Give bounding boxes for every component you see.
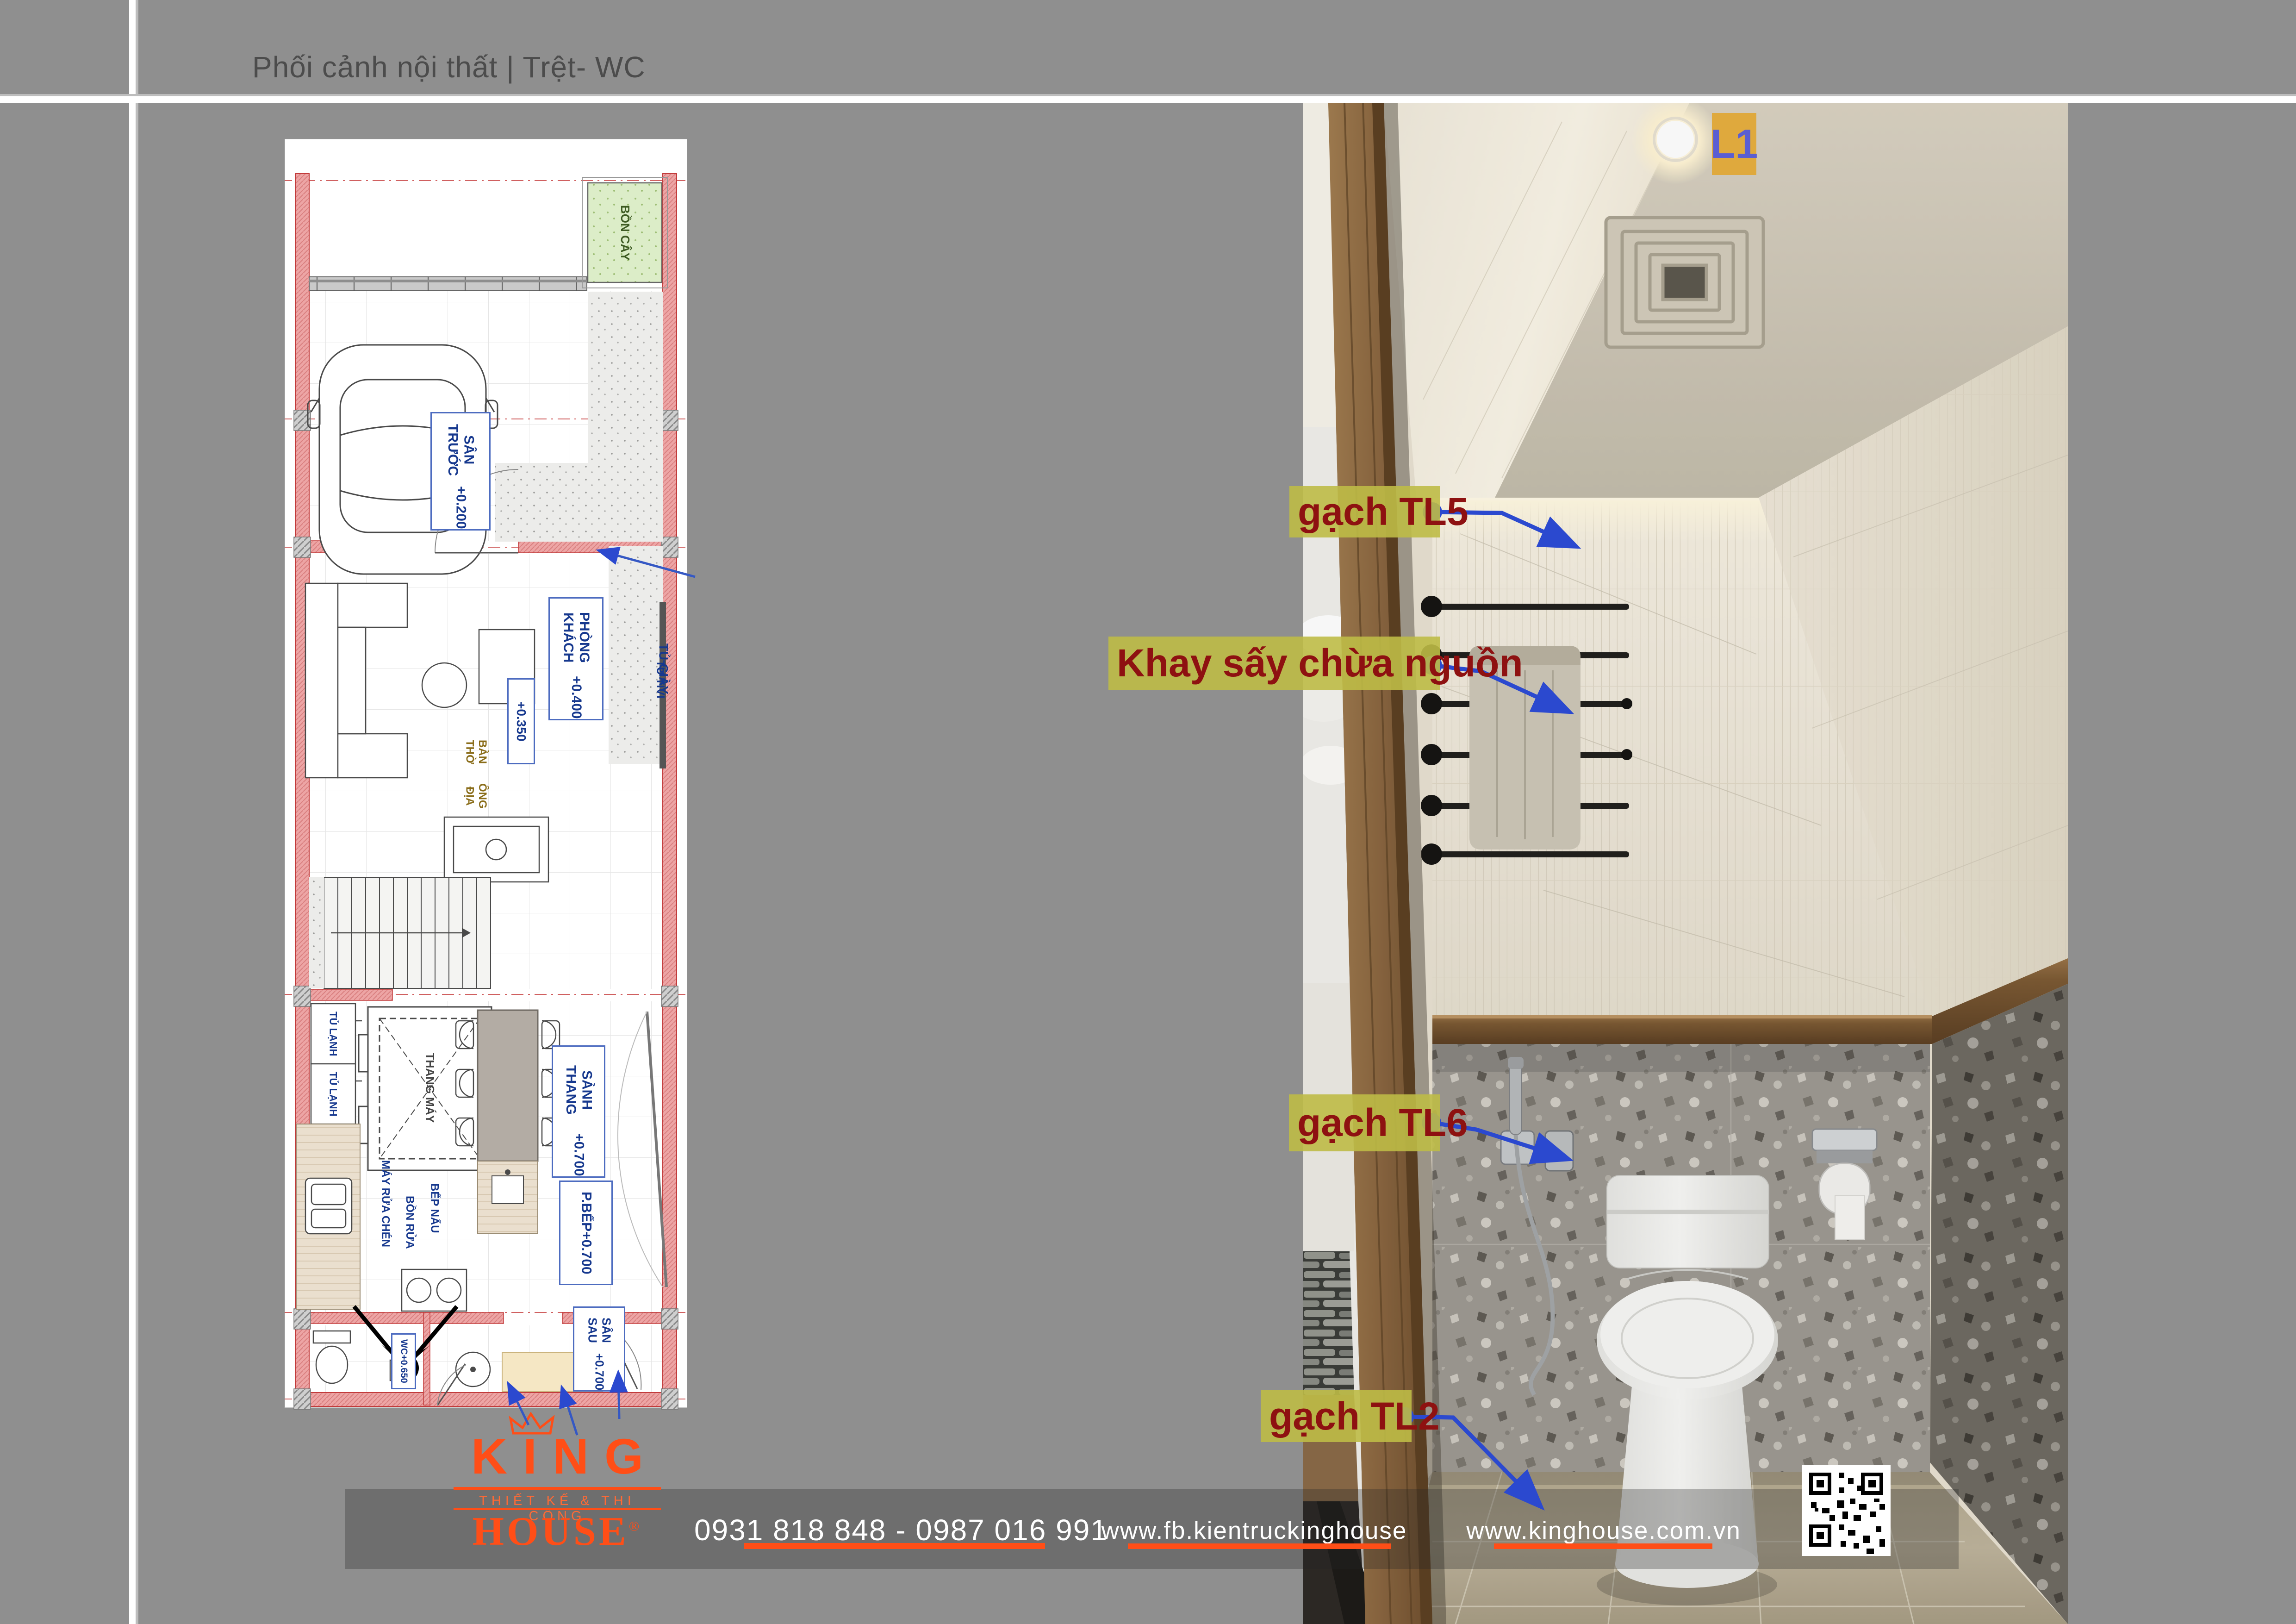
slide-canvas: Phối cảnh nội thất | Trệt- WC bbox=[0, 0, 2296, 1624]
footer-website-underline bbox=[1494, 1543, 1712, 1549]
floor-plan: BỒN CÂY SÂN TRƯỚC+0.200 +0.350 TỦ GIÀY P… bbox=[285, 139, 687, 1440]
brand-house-text: HOUSE bbox=[473, 1509, 629, 1554]
page-title: Phối cảnh nội thất | Trệt- WC bbox=[252, 50, 646, 84]
plan-label-phong-khach: PHÒNG KHÁCH+0.400 bbox=[548, 597, 604, 720]
plan-label-bep-nau: BẾP NẤU bbox=[423, 1174, 445, 1243]
plan-label-tu-lanh-1: TỦ LẠNH bbox=[312, 1006, 354, 1062]
header-white-band bbox=[0, 96, 2296, 103]
footer-phone-underline bbox=[744, 1543, 1045, 1549]
brand-registered-mark: ® bbox=[629, 1519, 642, 1534]
left-white-stripe bbox=[129, 0, 136, 1624]
qr-code bbox=[1802, 1465, 1891, 1556]
plan-label-may-rua-chen: MÁY RỬA CHÉN bbox=[373, 1143, 398, 1264]
annotation-gach-tl2: gạch TL2 bbox=[1261, 1390, 1412, 1442]
annotation-gach-tl6: gạch TL6 bbox=[1289, 1094, 1440, 1151]
plan-label-0350: +0.350 bbox=[507, 678, 535, 764]
plan-label-tu-lanh-2: TỦ LẠNH bbox=[312, 1066, 354, 1122]
left-stripe-shadow bbox=[136, 0, 138, 1624]
footer-phone: 0931 818 848 - 0987 016 991 bbox=[694, 1513, 1078, 1547]
brand-house: HOUSE® bbox=[454, 1512, 661, 1552]
footer-facebook-underline bbox=[1128, 1543, 1391, 1549]
plan-label-san-truoc: SÂN TRƯỚC+0.200 bbox=[430, 412, 491, 531]
footer-facebook: www.fb.kientruckinghouse bbox=[1097, 1517, 1412, 1545]
annotation-l1: L1 bbox=[1712, 113, 1756, 175]
plan-label-tu-tivi: TỦ TIVI bbox=[650, 634, 670, 725]
plan-label-sanh-thang: SẢNH THANG+0.700 bbox=[552, 1045, 605, 1178]
plan-label-ban-tho: BÀN THỜÔNG ĐỊA bbox=[460, 729, 492, 817]
footer-website: www.kinghouse.com.vn bbox=[1465, 1517, 1742, 1545]
brand-king: KING bbox=[454, 1431, 661, 1481]
plan-label-p-bep: P.BẾP+0.700 bbox=[559, 1181, 613, 1285]
plan-label-san-sau: SÂN SAU+0.700 bbox=[573, 1306, 625, 1392]
plan-label-bon-cay: BỒN CÂY bbox=[592, 187, 657, 278]
annotation-gach-tl5: gạch TL5 bbox=[1289, 486, 1440, 537]
plan-label-thang-may: THANG MÁY bbox=[419, 1044, 440, 1132]
plan-label-wc: WC+0.650 bbox=[391, 1333, 416, 1389]
plan-label-bon-rua: BỒN RỬA bbox=[399, 1183, 420, 1262]
annotation-khay-say: Khay sấy chừa nguồn bbox=[1108, 637, 1440, 690]
brand-rule-top bbox=[454, 1487, 661, 1490]
